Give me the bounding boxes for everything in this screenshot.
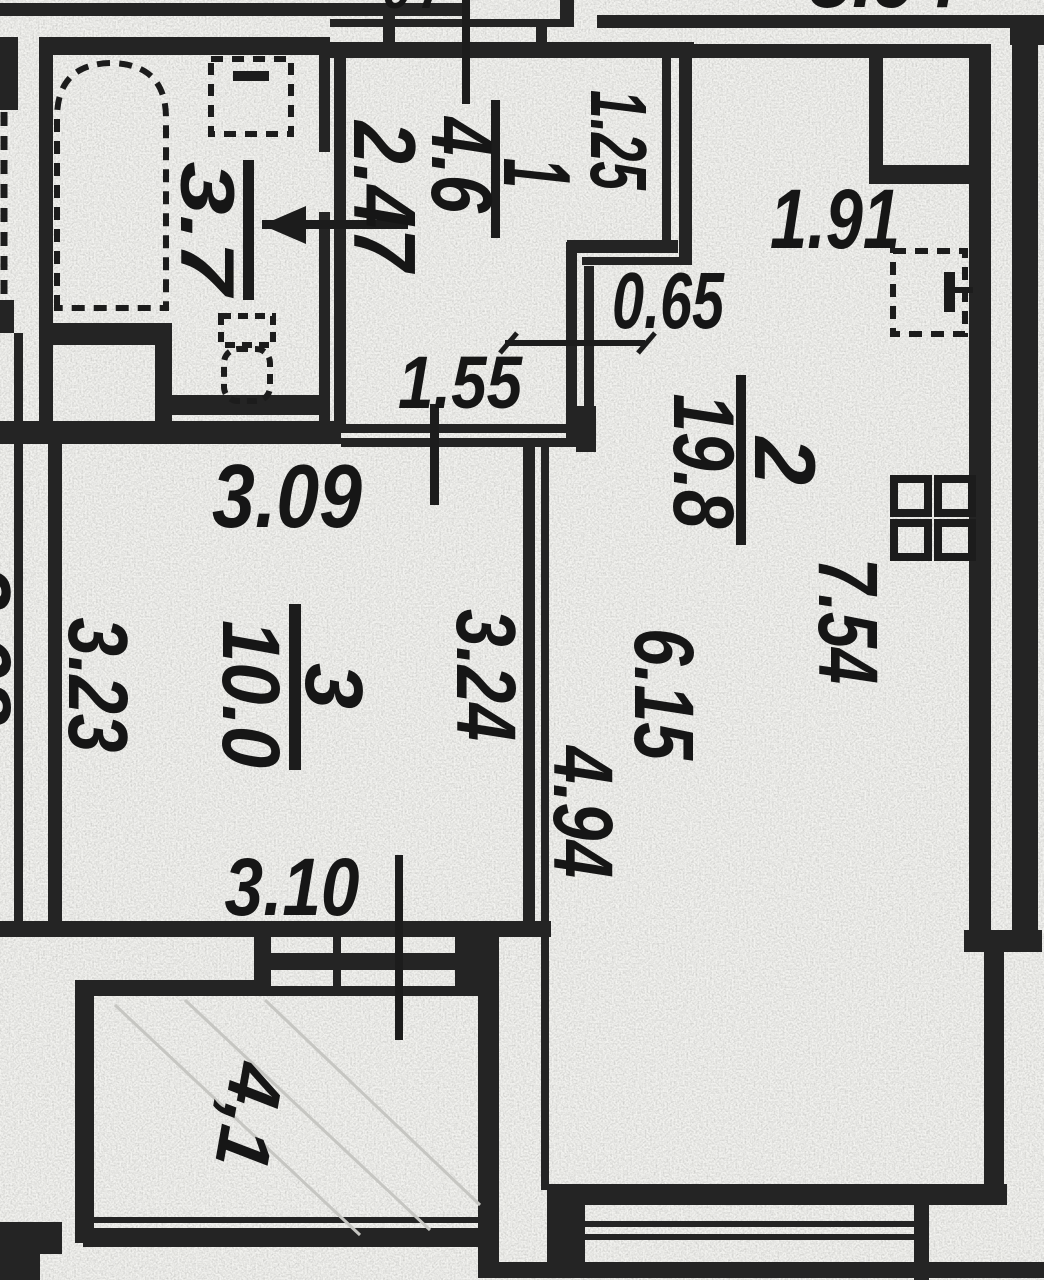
svg-text:3.24: 3.24 (439, 609, 533, 741)
svg-text:0: 0 (383, 0, 412, 20)
svg-text:7.54: 7.54 (801, 558, 895, 684)
svg-text:4.94: 4.94 (536, 744, 630, 878)
svg-text:1.91: 1.91 (770, 172, 900, 266)
svg-text:3.23: 3.23 (51, 618, 145, 753)
svg-text:1.55: 1.55 (398, 341, 524, 424)
svg-text:3.08: 3.08 (0, 565, 28, 725)
svg-text:3.7: 3.7 (164, 162, 249, 300)
svg-text:10.0: 10.0 (205, 620, 296, 768)
svg-text:6.15: 6.15 (617, 628, 711, 761)
svg-text:3.10: 3.10 (225, 842, 360, 933)
svg-text:0.65: 0.65 (612, 256, 725, 345)
svg-text:2: 2 (736, 435, 832, 485)
svg-text:1.25: 1.25 (574, 90, 663, 191)
svg-text:3.09: 3.09 (212, 447, 362, 547)
svg-text:5.94: 5.94 (809, 0, 959, 24)
svg-text:3: 3 (288, 663, 379, 709)
svg-text:7: 7 (418, 0, 449, 20)
svg-text:1: 1 (483, 158, 590, 188)
